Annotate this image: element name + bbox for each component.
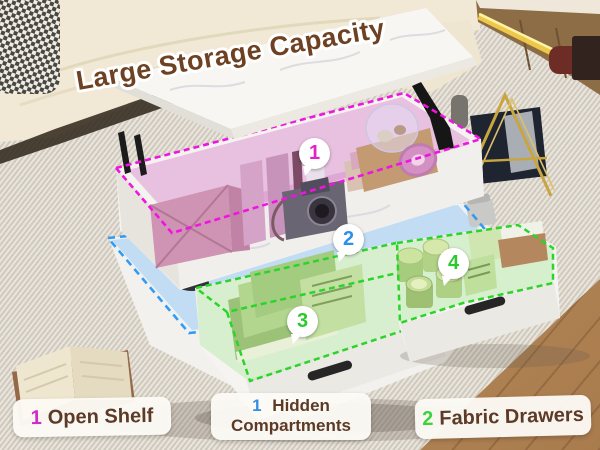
- scene-artwork: [0, 0, 600, 450]
- legend-label: Hidden Compartments: [231, 396, 351, 435]
- right-drawer: [396, 221, 560, 362]
- badge-hidden-compartment: 2: [333, 224, 364, 255]
- glass-dome: [366, 104, 418, 152]
- legend-count: 1: [30, 406, 42, 429]
- badge-number: 4: [448, 252, 459, 275]
- badge-open-shelf: 1: [299, 138, 330, 169]
- legend-label: Fabric Drawers: [439, 403, 584, 430]
- tv-stand: [476, 0, 600, 95]
- legend-open-shelf: 1 Open Shelf: [13, 397, 172, 438]
- badge-left-drawer: 3: [287, 306, 318, 337]
- badge-number: 3: [297, 310, 308, 333]
- legend-fabric-drawers: 2 Fabric Drawers: [415, 395, 592, 440]
- legend-hidden-compartments: 1 Hidden Compartments: [211, 393, 371, 440]
- badge-right-drawer: 4: [438, 248, 469, 279]
- legend-count: 1: [252, 396, 261, 415]
- legend-label: Open Shelf: [48, 404, 154, 429]
- throw-pillow: [0, 0, 60, 94]
- product-image: Large Storage Capacity 1 2 3 4 1 Open Sh…: [0, 0, 600, 450]
- badge-number: 1: [309, 142, 320, 165]
- legend-count: 2: [422, 407, 434, 430]
- badge-number: 2: [343, 228, 354, 251]
